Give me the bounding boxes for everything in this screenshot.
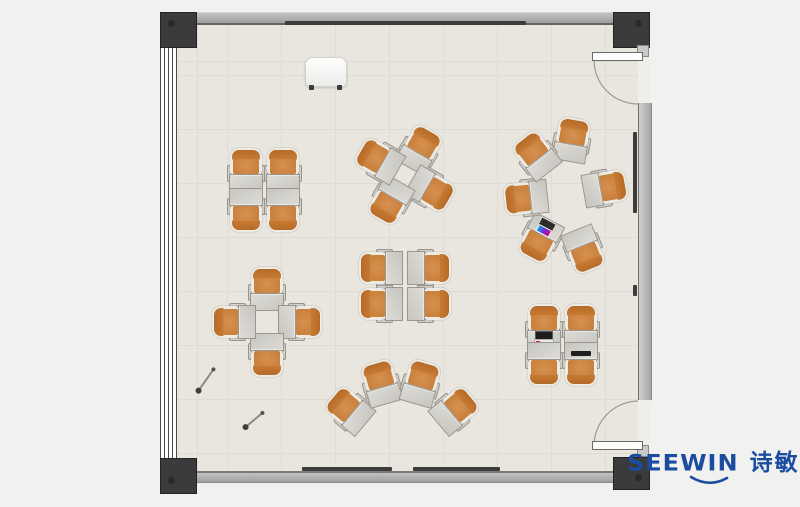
chair-icon [528, 304, 560, 331]
desk-chair-unit [266, 188, 300, 232]
door-threshold-top [638, 57, 650, 103]
desk-chair-unit [564, 342, 598, 386]
desk-icon [527, 342, 561, 360]
desk-chair-unit [229, 188, 263, 232]
desk-chair-unit [278, 305, 322, 339]
desk-chair-unit [250, 333, 284, 377]
desk-chair-unit [527, 342, 561, 386]
brand-cjk-name: 诗敏 [750, 451, 800, 476]
column-bottom-left [160, 458, 197, 494]
chair-icon [251, 350, 283, 377]
chair-icon [359, 288, 386, 320]
desk-chair-unit [502, 179, 549, 217]
whiteboard-rail-bottom-1 [302, 467, 392, 471]
brand-wordmark: SEEWIN [627, 452, 739, 474]
window-wall-left [160, 48, 177, 458]
whiteboard-rail-top [285, 21, 526, 25]
desk-icon [229, 188, 263, 206]
desk-icon [238, 305, 256, 339]
flipchart-board [305, 57, 347, 87]
desk-icon [266, 188, 300, 206]
desk-chair-unit [407, 287, 451, 321]
desk-icon [528, 179, 549, 215]
door-threshold-bottom [638, 401, 650, 445]
desk-chair-unit [359, 287, 403, 321]
wall-outlet-right [633, 285, 637, 296]
chair-icon [528, 359, 560, 386]
desk-icon [407, 287, 425, 321]
chair-icon [295, 306, 322, 338]
chair-icon [565, 304, 597, 331]
desk-icon [407, 251, 425, 285]
whiteboard-rail-right [633, 132, 637, 213]
chair-icon [267, 205, 299, 232]
desk-chair-unit [407, 251, 451, 285]
desk-icon [385, 251, 403, 285]
chair-icon [230, 148, 262, 175]
desk-chair-unit [266, 148, 300, 192]
whiteboard-rail-bottom-2 [413, 467, 500, 471]
logo-swoosh-icon [688, 475, 730, 486]
wall-right [638, 103, 652, 400]
chair-icon [267, 148, 299, 175]
chair-icon [565, 359, 597, 386]
chair-icon [230, 205, 262, 232]
door-leaf-bottom [592, 441, 643, 450]
door-leaf-top [592, 52, 643, 61]
column-top-left [160, 12, 197, 48]
floorplan-canvas: SEEWIN 诗敏 [0, 0, 800, 507]
chair-icon [424, 288, 451, 320]
desk-chair-unit [212, 305, 256, 339]
chair-icon [212, 306, 239, 338]
chair-icon [424, 252, 451, 284]
chair-icon [251, 267, 283, 294]
desk-chair-unit [359, 251, 403, 285]
desk-chair-unit [229, 148, 263, 192]
chair-icon [359, 252, 386, 284]
wall-bottom [197, 471, 613, 483]
column-top-right [613, 12, 650, 48]
desk-icon [385, 287, 403, 321]
brand-logo: SEEWIN 诗敏 [627, 451, 800, 476]
